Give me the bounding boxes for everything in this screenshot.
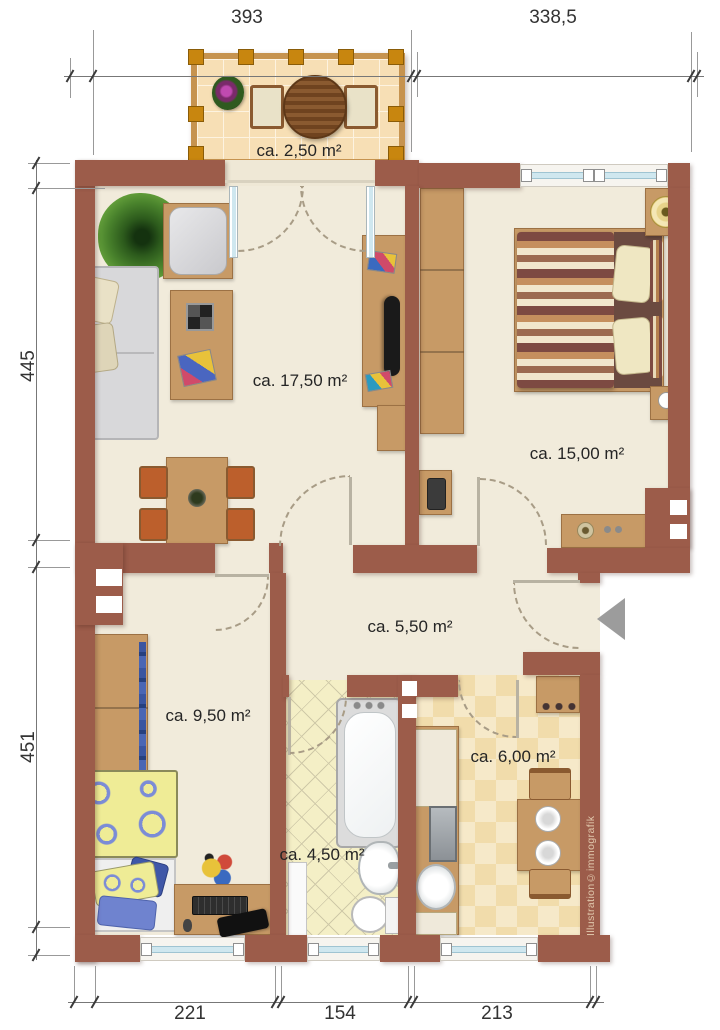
window-handle	[368, 943, 379, 956]
bed-bolster	[650, 240, 663, 302]
pergola-post	[238, 49, 254, 65]
dining-chair	[226, 508, 255, 541]
kids-room-window	[140, 937, 245, 961]
window-handle	[526, 943, 537, 956]
kids-shelf-books	[139, 642, 146, 770]
extension-line	[28, 188, 105, 189]
wall-kitchen-top-right	[523, 652, 600, 675]
extension-line	[691, 32, 692, 152]
window-handle	[583, 169, 594, 182]
dimension-left-2: 451	[18, 731, 40, 763]
wall-niche	[670, 500, 687, 515]
window-handle	[521, 169, 532, 182]
dresser-knob	[604, 526, 611, 533]
bathtub-basin	[344, 712, 396, 838]
living-room-area-label: ca. 17,50 m²	[253, 371, 348, 391]
kitchen-door-leaf	[516, 680, 519, 738]
pergola-post	[388, 106, 404, 122]
kitchen-window	[440, 937, 538, 961]
wall-bottom-1	[75, 935, 140, 962]
wall-niche	[402, 681, 417, 696]
window-glass	[152, 946, 233, 953]
dresser-candle	[577, 522, 594, 539]
balcony-door-sill	[225, 180, 375, 183]
wall-divider-living-bedroom	[405, 186, 419, 548]
bedroom-area-label: ca. 15,00 m²	[530, 444, 625, 464]
dimension-bottom-2: 154	[324, 1003, 356, 1025]
window-handle	[441, 943, 452, 956]
wall-bedroom-bottom	[547, 548, 690, 573]
wall-right-bedroom-block	[645, 488, 690, 548]
window-glass	[605, 172, 656, 179]
window-handle	[594, 169, 605, 182]
dimension-left-1: 445	[18, 350, 40, 382]
bed-pillow	[611, 244, 655, 304]
kitchen-area-label: ca. 6,00 m²	[470, 747, 555, 767]
bed-pillow	[612, 316, 655, 375]
kitchen-sink	[416, 864, 456, 910]
balcony-table	[283, 75, 347, 139]
bedroom-window	[520, 164, 668, 187]
window-handle	[308, 943, 319, 956]
bedroom-wardrobe	[420, 188, 464, 434]
bathtub-taps	[352, 701, 386, 710]
window-glass	[319, 946, 368, 953]
dimension-top-2: 338,5	[529, 7, 577, 29]
wall-hall-t	[353, 545, 477, 573]
wall-top-bedroom-corner	[668, 163, 690, 188]
wall-niche	[96, 569, 122, 586]
keyboard	[192, 896, 248, 915]
dimension-top-1: 393	[231, 7, 263, 29]
dining-chair	[226, 466, 255, 499]
balcony-door-leaf	[229, 186, 238, 258]
pergola-post	[188, 106, 204, 122]
watermark: Illustration©immografik	[585, 768, 597, 936]
pergola-post	[338, 49, 354, 65]
pergola-post	[388, 49, 404, 65]
toilet-bowl	[351, 896, 389, 933]
dimension-line-top	[64, 76, 704, 77]
wall-top-living-left	[75, 160, 225, 186]
window-handle	[656, 169, 667, 182]
side-table	[377, 405, 407, 451]
bathroom-cabinet	[288, 862, 307, 936]
cabinet-knobs	[542, 703, 576, 710]
bed-blanket	[517, 232, 614, 388]
balcony-chair	[344, 85, 378, 129]
computer-mouse	[183, 919, 192, 932]
extension-line	[93, 30, 94, 155]
wall-entrance-notch	[578, 573, 600, 583]
floor-plan: ca. 2,50 m² ca. 17,50 m² ca. 15,00 m² ca…	[0, 0, 720, 1030]
wall-niche	[96, 596, 122, 613]
balcony-chair	[250, 85, 284, 129]
wall-kitchen-top-left	[412, 675, 458, 697]
wall-living-hall-right	[269, 543, 283, 573]
telephone	[427, 478, 446, 510]
dining-centerpiece	[188, 489, 206, 507]
extension-line	[411, 30, 412, 152]
stove	[429, 806, 457, 862]
balcony-door-leaf	[366, 186, 375, 258]
wall-bath-top-jamb	[283, 675, 289, 697]
kitchen-cabinet	[413, 729, 457, 807]
dimension-bottom-3: 213	[481, 1003, 513, 1025]
dimension-line-left	[36, 160, 37, 960]
window-glass	[452, 946, 526, 953]
coffee-table-decor	[186, 303, 214, 331]
armchair-cushion	[169, 207, 227, 275]
wall-top-bedroom	[419, 163, 520, 188]
flower-pot	[212, 76, 244, 110]
wall-bottom-2	[245, 935, 307, 962]
tv	[384, 296, 400, 376]
plate	[535, 806, 561, 832]
wall-top-living-right	[375, 160, 419, 186]
bed-bolster	[650, 316, 663, 378]
dresser-knob	[615, 526, 622, 533]
kitchen-cabinet	[413, 912, 457, 935]
dimension-bottom-1: 221	[174, 1003, 206, 1025]
wall-niche	[402, 704, 417, 718]
kitchen-chair	[529, 768, 571, 800]
wall-bottom-4	[538, 935, 610, 962]
extension-line	[70, 58, 71, 98]
entrance-arrow	[597, 598, 625, 640]
wall-kids-bath	[270, 573, 286, 935]
wall-bottom-3	[380, 935, 440, 962]
balcony-area-label: ca. 2,50 m²	[256, 141, 341, 161]
bathroom-area-label: ca. 4,50 m²	[279, 845, 364, 865]
wall-niche	[670, 524, 687, 539]
window-handle	[141, 943, 152, 956]
hallway-area-label: ca. 5,50 m²	[367, 617, 452, 637]
plate	[535, 840, 561, 866]
bathroom-window	[307, 937, 380, 961]
kitchen-chair	[529, 869, 571, 899]
window-glass	[532, 172, 583, 179]
kids-room-area-label: ca. 9,50 m²	[165, 706, 250, 726]
kids-pillow	[97, 895, 158, 931]
window-handle	[233, 943, 244, 956]
dining-chair	[139, 466, 168, 499]
pergola-post	[288, 49, 304, 65]
pergola-post	[188, 49, 204, 65]
dining-chair	[139, 508, 168, 541]
